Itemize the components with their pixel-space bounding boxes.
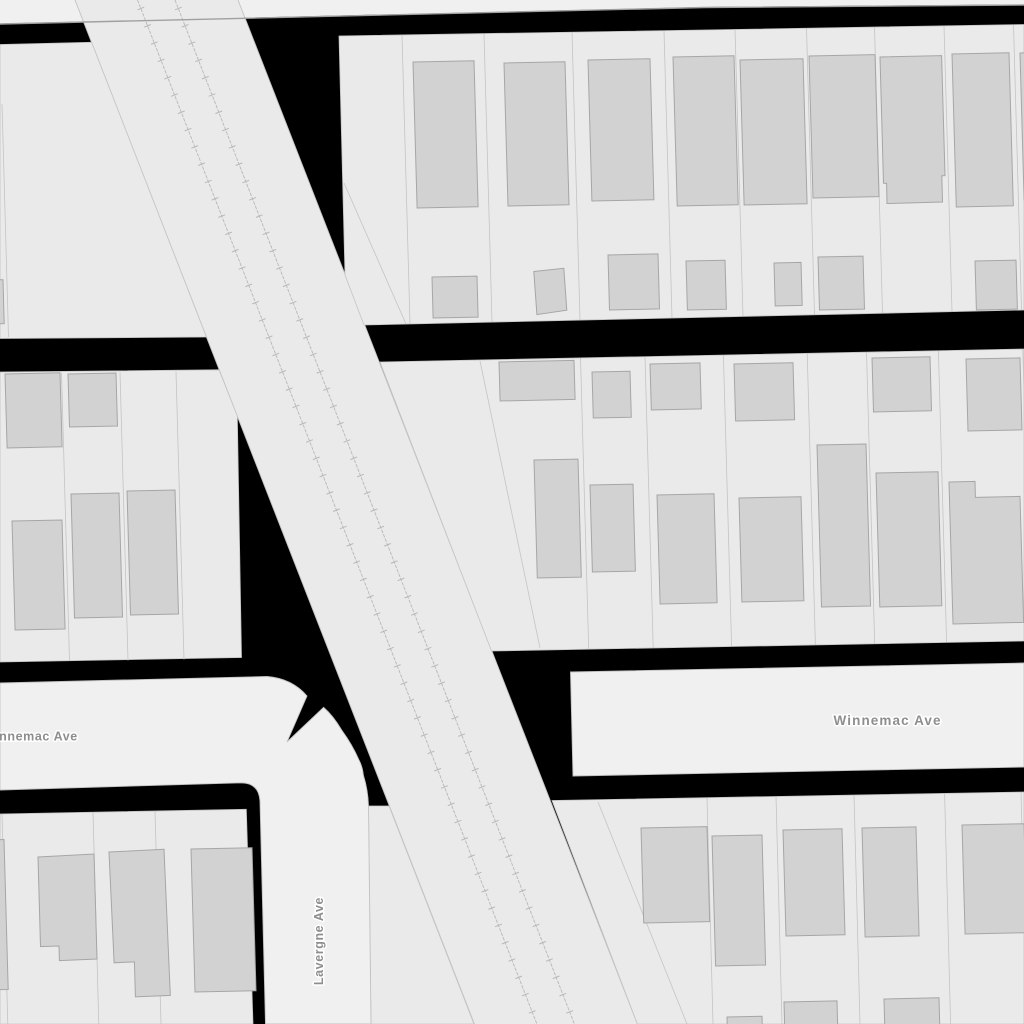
- svg-text:Lavergne Ave: Lavergne Ave: [312, 897, 326, 985]
- svg-text:Winnemac Ave: Winnemac Ave: [834, 713, 942, 728]
- svg-text:Winnemac Ave: Winnemac Ave: [0, 730, 78, 744]
